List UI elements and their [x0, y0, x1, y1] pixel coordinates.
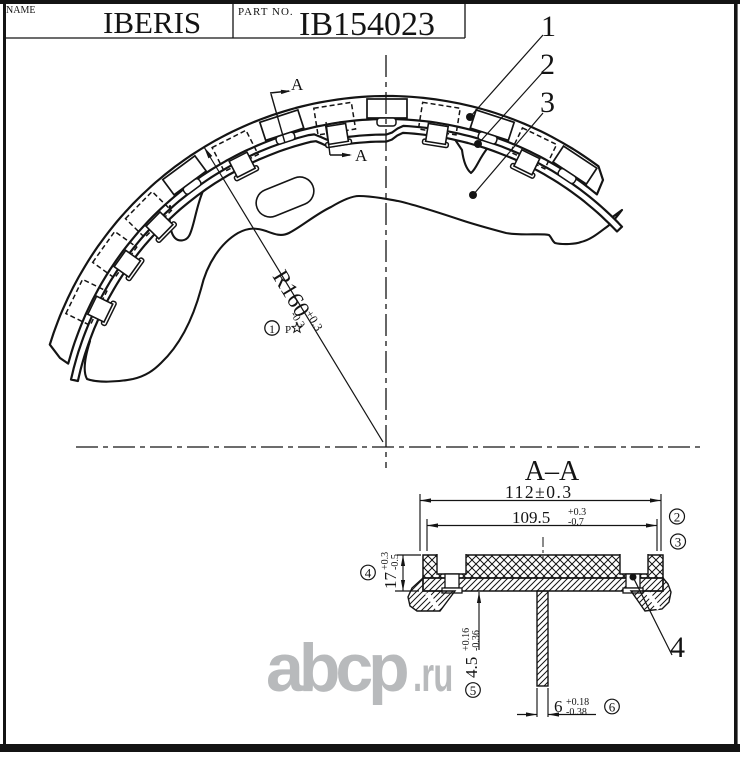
- svg-text:.ru: .ru: [413, 648, 453, 702]
- svg-text:IB154023: IB154023: [299, 6, 435, 43]
- svg-text:IBERIS: IBERIS: [103, 5, 201, 40]
- svg-text:A: A: [291, 75, 304, 94]
- svg-text:6: 6: [554, 697, 563, 716]
- svg-text:1: 1: [541, 10, 556, 43]
- svg-text:109.5: 109.5: [512, 508, 550, 527]
- svg-text:2: 2: [540, 48, 555, 81]
- svg-text:112±0.3: 112±0.3: [505, 482, 573, 502]
- svg-text:17: 17: [381, 572, 400, 590]
- svg-text:NAME: NAME: [6, 5, 35, 16]
- svg-text:-0.36: -0.36: [471, 630, 482, 651]
- svg-text:1: 1: [269, 322, 275, 336]
- svg-text:4: 4: [365, 566, 372, 581]
- svg-text:3: 3: [540, 86, 555, 119]
- svg-text:-0.7: -0.7: [568, 517, 584, 528]
- svg-text:abcp: abcp: [266, 630, 407, 706]
- svg-text:-0.5: -0.5: [390, 554, 401, 570]
- svg-text:4: 4: [670, 631, 685, 664]
- svg-text:P: P: [285, 324, 291, 336]
- svg-text:A: A: [355, 146, 368, 165]
- svg-text:6: 6: [609, 700, 616, 715]
- svg-text:4.5: 4.5: [462, 657, 481, 678]
- svg-text:5: 5: [470, 683, 477, 698]
- svg-text:-0.38: -0.38: [566, 707, 587, 718]
- svg-text:3: 3: [675, 535, 682, 550]
- svg-text:2: 2: [674, 510, 681, 525]
- svg-text:PART NO.: PART NO.: [238, 6, 294, 18]
